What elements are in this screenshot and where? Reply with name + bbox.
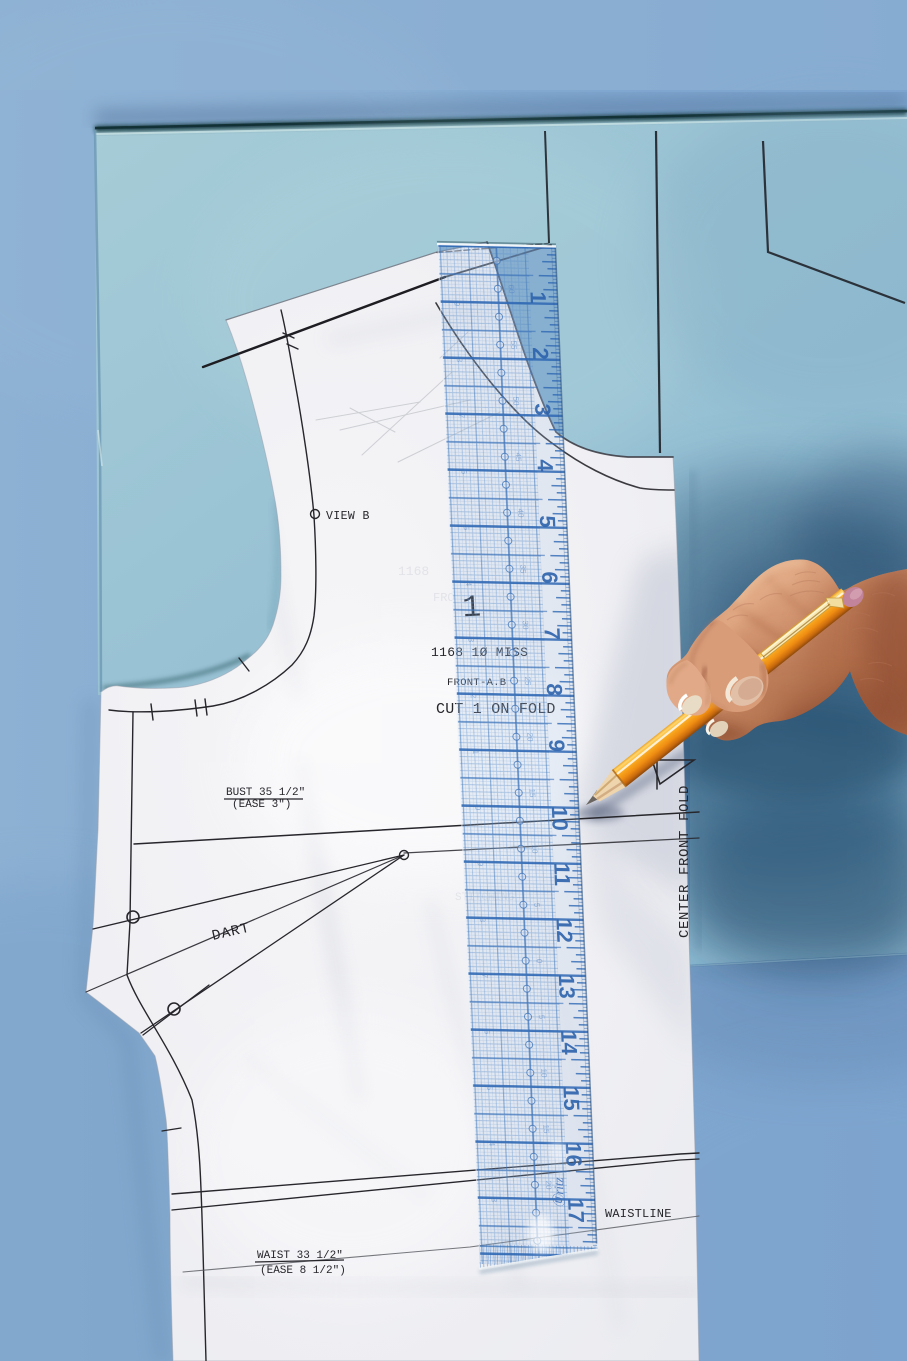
svg-text:FRO: FRO [433, 591, 455, 605]
svg-text:9: 9 [452, 302, 461, 307]
svg-text:5: 5 [485, 1086, 494, 1091]
svg-text:1168: 1168 [398, 564, 429, 579]
svg-text:15: 15 [541, 1124, 550, 1134]
svg-text:60: 60 [507, 284, 516, 294]
svg-text:0: 0 [535, 959, 544, 964]
svg-text:6: 6 [483, 1030, 492, 1035]
svg-text:13: 13 [554, 974, 580, 999]
svg-text:5: 5 [462, 526, 471, 531]
svg-text:(EASE 8 1/2"): (EASE 8 1/2") [260, 1265, 346, 1277]
svg-text:20: 20 [525, 732, 534, 742]
svg-text:12: 12 [551, 918, 577, 943]
svg-text:1: 1 [525, 291, 550, 304]
svg-text:7: 7 [480, 974, 489, 979]
svg-text:40: 40 [516, 508, 525, 518]
svg-text:11: 11 [549, 863, 575, 887]
svg-text:50: 50 [511, 396, 520, 406]
svg-text:1: 1 [471, 750, 480, 755]
svg-text:(EASE 3"): (EASE 3") [232, 799, 291, 811]
svg-text:4: 4 [532, 459, 558, 473]
svg-text:8: 8 [542, 683, 567, 696]
svg-text:25: 25 [523, 676, 532, 686]
svg-text:2: 2 [469, 694, 478, 699]
svg-text:15: 15 [528, 788, 537, 798]
svg-text:3: 3 [530, 403, 555, 416]
svg-text:6: 6 [459, 470, 468, 475]
svg-text:5: 5 [535, 515, 560, 528]
svg-text:9: 9 [476, 862, 485, 867]
svg-text:9: 9 [544, 739, 569, 752]
svg-text:55: 55 [509, 340, 518, 350]
svg-text:15: 15 [558, 1086, 584, 1111]
svg-text:0: 0 [473, 806, 482, 811]
svg-text:35: 35 [518, 564, 527, 574]
svg-text:VIEW B: VIEW B [326, 510, 370, 523]
svg-text:17: 17 [563, 1198, 589, 1223]
svg-text:10: 10 [547, 806, 573, 831]
svg-text:3: 3 [490, 1198, 499, 1203]
svg-text:6: 6 [537, 571, 562, 584]
svg-text:7: 7 [457, 414, 466, 419]
svg-text:8: 8 [478, 918, 487, 923]
svg-text:2: 2 [528, 347, 553, 360]
svg-text:30: 30 [521, 620, 530, 630]
svg-text:45: 45 [514, 452, 523, 462]
svg-text:WAISTLINE: WAISTLINE [605, 1207, 672, 1221]
svg-text:4: 4 [464, 582, 473, 587]
svg-text:14: 14 [556, 1030, 582, 1056]
svg-text:8: 8 [455, 358, 464, 363]
svg-text:5: 5 [537, 1015, 546, 1020]
svg-text:4: 4 [487, 1142, 496, 1147]
svg-text:3: 3 [466, 638, 475, 643]
svg-text:5: 5 [532, 903, 541, 908]
svg-text:BUST 35 1/2": BUST 35 1/2" [226, 787, 305, 799]
svg-text:7: 7 [539, 627, 564, 640]
svg-text:10: 10 [530, 844, 539, 854]
svg-text:CENTER FRONT FOLD: CENTER FRONT FOLD [677, 785, 693, 938]
svg-text:10: 10 [539, 1068, 548, 1078]
svg-text:Ⓤritz: Ⓤritz [551, 1177, 567, 1208]
